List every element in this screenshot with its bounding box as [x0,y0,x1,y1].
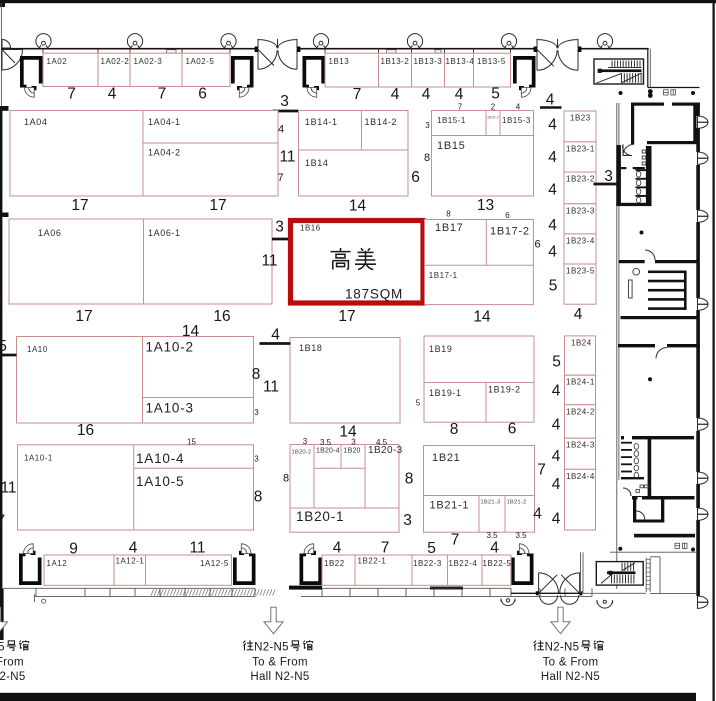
svg-text:1B24-1: 1B24-1 [566,378,595,387]
svg-text:3: 3 [254,408,259,417]
svg-text:4: 4 [552,383,561,400]
svg-text:1B23-1: 1B23-1 [566,144,595,153]
svg-text:7: 7 [0,513,5,530]
svg-text:1A12-5: 1A12-5 [200,559,229,568]
svg-text:1B15: 1B15 [437,140,466,152]
svg-text:To & From: To & From [0,657,24,669]
svg-text:7: 7 [381,540,390,557]
svg-text:3: 3 [303,437,308,446]
svg-text:N2-N5: N2-N5 [545,642,580,654]
svg-text:1B17-2: 1B17-2 [490,226,530,238]
svg-text:1B13-4: 1B13-4 [446,57,475,66]
svg-text:1B14: 1B14 [305,158,328,168]
svg-text:1B18: 1B18 [299,343,322,353]
svg-text:3: 3 [403,512,412,529]
svg-text:9: 9 [69,541,78,558]
svg-text:1A02: 1A02 [47,57,68,66]
svg-text:1B14-1: 1B14-1 [305,117,338,127]
svg-text:5: 5 [549,278,558,295]
svg-text:6: 6 [411,169,420,186]
svg-text:13: 13 [477,197,494,214]
svg-text:1A04: 1A04 [24,117,47,127]
svg-text:1B23: 1B23 [570,114,591,123]
svg-text:4: 4 [548,117,557,134]
svg-text:6: 6 [198,86,207,103]
svg-text:1B24-3: 1B24-3 [566,441,595,450]
svg-text:1B22-3: 1B22-3 [413,559,442,568]
svg-text:8: 8 [446,210,451,219]
svg-text:4: 4 [129,540,138,557]
svg-text:8: 8 [450,421,459,438]
svg-text:3.5: 3.5 [515,531,527,540]
svg-text:1B21: 1B21 [432,452,461,464]
svg-text:1A06-1: 1A06-1 [148,228,181,238]
svg-text:11: 11 [261,253,277,270]
svg-text:1A12-1: 1A12-1 [116,557,145,566]
svg-text:1A10-5: 1A10-5 [136,474,184,489]
svg-text:5: 5 [552,354,561,371]
svg-text:Hall N2-N5: Hall N2-N5 [0,671,26,683]
svg-text:3: 3 [254,455,259,464]
svg-text:1A10-2: 1A10-2 [146,340,194,355]
svg-text:3: 3 [351,438,356,447]
svg-text:4: 4 [516,103,521,112]
svg-text:5: 5 [0,338,7,355]
svg-text:N2-N5: N2-N5 [0,642,5,654]
svg-text:14: 14 [182,323,200,340]
svg-text:4: 4 [490,540,499,557]
svg-text:11: 11 [279,149,295,166]
svg-text:16: 16 [213,308,230,325]
svg-text:17: 17 [71,197,88,214]
svg-text:7: 7 [537,462,546,479]
svg-text:1A10: 1A10 [27,345,48,354]
svg-text:8: 8 [283,473,289,485]
svg-text:6: 6 [534,239,540,251]
svg-text:17: 17 [209,197,226,214]
svg-text:1A12: 1A12 [47,559,68,568]
svg-text:4: 4 [455,86,464,103]
svg-text:7: 7 [67,86,76,103]
svg-text:4: 4 [548,182,557,199]
svg-text:1B21-2: 1B21-2 [507,500,527,506]
svg-text:3.5: 3.5 [320,438,332,447]
svg-text:4: 4 [391,86,400,103]
svg-text:1A04-2: 1A04-2 [148,148,181,158]
svg-text:1B13-5: 1B13-5 [477,57,506,66]
svg-text:1B22-5: 1B22-5 [483,559,512,568]
svg-text:1B23-3: 1B23-3 [566,206,595,215]
svg-text:8: 8 [424,152,430,164]
svg-text:2: 2 [491,103,496,112]
svg-text:1B20: 1B20 [344,448,361,455]
svg-text:1A02-2: 1A02-2 [101,57,130,66]
svg-text:5: 5 [491,86,500,103]
svg-text:4: 4 [108,86,117,103]
svg-text:1B22: 1B22 [324,559,345,568]
svg-text:1A06: 1A06 [38,228,61,238]
svg-text:1B24-2: 1B24-2 [566,407,595,416]
svg-text:N2-N5: N2-N5 [254,642,289,654]
svg-text:1B16: 1B16 [300,224,321,233]
svg-text:1B21-3: 1B21-3 [481,500,501,506]
svg-text:4: 4 [552,511,561,528]
svg-text:1B13: 1B13 [329,57,350,66]
svg-text:1B14-2: 1B14-2 [365,117,398,127]
svg-text:1B15-2: 1B15-2 [487,116,499,120]
svg-text:7: 7 [451,532,460,549]
svg-text:4: 4 [552,417,561,434]
svg-text:1B19-2: 1B19-2 [488,385,521,395]
svg-text:Hall N2-N5: Hall N2-N5 [541,671,600,683]
svg-text:1B13-2: 1B13-2 [381,57,410,66]
svg-text:1A02-5: 1A02-5 [186,57,215,66]
svg-text:6: 6 [508,421,517,438]
svg-text:4: 4 [333,540,342,557]
svg-text:1B21-1: 1B21-1 [430,500,470,512]
svg-text:1B15-1: 1B15-1 [437,116,466,125]
svg-text:4: 4 [533,506,542,523]
svg-text:16: 16 [77,422,94,439]
svg-text:4: 4 [574,306,583,323]
svg-text:3: 3 [275,219,284,236]
svg-text:1B23-5: 1B23-5 [566,267,595,276]
svg-text:8: 8 [254,489,263,506]
svg-text:8: 8 [405,471,414,488]
svg-text:7: 7 [277,172,283,184]
svg-text:4: 4 [548,244,557,261]
svg-text:1B20-1: 1B20-1 [296,509,344,524]
svg-text:11: 11 [263,379,279,396]
svg-text:4: 4 [548,149,557,166]
svg-text:1B20-4: 1B20-4 [316,448,340,455]
svg-text:1B19-1: 1B19-1 [429,388,462,398]
svg-text:4: 4 [552,448,561,465]
svg-text:1B15-3: 1B15-3 [502,116,531,125]
svg-text:17: 17 [338,308,355,325]
svg-text:4: 4 [271,327,280,344]
svg-text:4: 4 [422,86,431,103]
svg-text:1B24-4: 1B24-4 [566,472,595,481]
svg-text:7: 7 [158,86,167,103]
svg-text:8: 8 [252,366,261,383]
svg-text:1A04-1: 1A04-1 [148,117,181,127]
svg-text:4: 4 [552,476,561,493]
svg-text:14: 14 [473,309,491,326]
svg-text:7: 7 [458,103,463,112]
svg-text:1A10-3: 1A10-3 [146,401,194,416]
svg-text:1B17: 1B17 [435,222,464,234]
svg-text:1B22-4: 1B22-4 [449,559,478,568]
svg-text:Hall N2-N5: Hall N2-N5 [250,671,309,683]
svg-text:1B23-2: 1B23-2 [566,175,595,184]
svg-text:1B20-2: 1B20-2 [292,450,312,456]
svg-text:3: 3 [280,93,289,110]
svg-text:4: 4 [278,124,284,136]
svg-text:187SQM: 187SQM [345,287,403,302]
svg-text:11: 11 [189,540,205,557]
svg-text:1A02-3: 1A02-3 [134,57,163,66]
svg-text:3: 3 [604,168,613,185]
svg-text:6: 6 [505,211,510,220]
svg-text:7: 7 [353,86,362,103]
svg-text:3: 3 [425,121,430,130]
svg-text:To & From: To & From [543,657,599,669]
svg-text:5: 5 [416,399,421,408]
svg-text:11: 11 [0,480,16,497]
svg-text:14: 14 [349,198,367,215]
svg-text:1B17-1: 1B17-1 [429,271,458,280]
svg-text:1B13-3: 1B13-3 [414,57,443,66]
svg-text:17: 17 [75,308,92,325]
svg-text:4.5: 4.5 [376,438,388,447]
svg-text:To & From: To & From [252,657,308,669]
svg-text:1B24: 1B24 [571,338,592,347]
svg-text:5: 5 [427,540,436,557]
svg-text:1B19: 1B19 [429,344,452,354]
svg-text:1B23-4: 1B23-4 [566,236,595,245]
svg-text:1A10-4: 1A10-4 [136,451,184,466]
svg-text:4: 4 [546,92,555,109]
svg-text:4: 4 [548,217,557,234]
svg-text:1A10-1: 1A10-1 [24,454,53,463]
svg-text:1B22-1: 1B22-1 [358,557,387,566]
